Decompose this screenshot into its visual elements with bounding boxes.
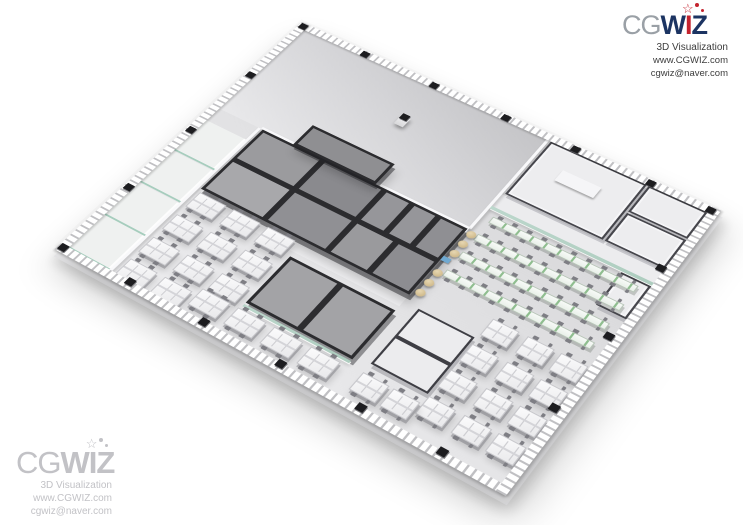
logo-wand-i: ☆I (685, 12, 692, 39)
desk-cluster (415, 396, 457, 428)
wood-wall (280, 260, 291, 272)
logo-cg-text: CG (622, 10, 661, 40)
watermark-w-text: W (61, 445, 89, 480)
desk-cluster (162, 214, 204, 243)
chair-row (452, 435, 474, 449)
chair-row (565, 352, 586, 365)
logo-z-text: Z (692, 10, 708, 40)
chair-row (398, 387, 419, 400)
glass-front (280, 260, 291, 272)
chair-row (497, 318, 518, 330)
desk-cluster (196, 232, 238, 261)
chair-row (532, 335, 553, 347)
watermark-z-text: Z (96, 445, 114, 480)
desk-cluster (480, 319, 520, 349)
wand-star-icon: ☆ (86, 437, 98, 450)
logo-website: www.CGWIZ.com (622, 56, 728, 66)
desk-cluster (450, 415, 492, 448)
cgwiz-logo: CGW☆IZ (622, 12, 707, 39)
desk-cluster (472, 388, 513, 420)
watermark-wand-i: ☆I (89, 447, 97, 478)
desk-cluster (515, 336, 555, 366)
cgwiz-watermark-block: CGW☆IZ 3D Visualization www.CGWIZ.com cg… (16, 447, 112, 517)
desk-cluster (494, 362, 535, 393)
chair-row (367, 371, 388, 384)
watermark-cg-text: CG (16, 445, 61, 480)
watermark-tagline: 3D Visualization (16, 481, 112, 491)
water-cooler (440, 256, 451, 264)
watermark-email: cgwiz@naver.com (16, 507, 112, 517)
wand-star-icon: ☆ (682, 2, 694, 15)
sparkle-dot-icon (695, 3, 699, 7)
watermark-website: www.CGWIZ.com (16, 494, 112, 504)
logo-tagline: 3D Visualization (622, 43, 728, 53)
pantry-stool (456, 239, 470, 249)
desk-cluster (379, 388, 420, 420)
logo-email: cgwiz@naver.com (622, 69, 728, 79)
cgwiz-logo-block: CGW☆IZ 3D Visualization www.CGWIZ.com cg… (622, 12, 728, 78)
chair-row (486, 453, 508, 467)
chair-row (416, 416, 438, 429)
sparkle-dot-icon (701, 9, 704, 12)
watermark-logo: CGW☆IZ (16, 447, 112, 478)
building-floorplan-3d (55, 22, 722, 496)
desk-cluster (230, 250, 273, 280)
